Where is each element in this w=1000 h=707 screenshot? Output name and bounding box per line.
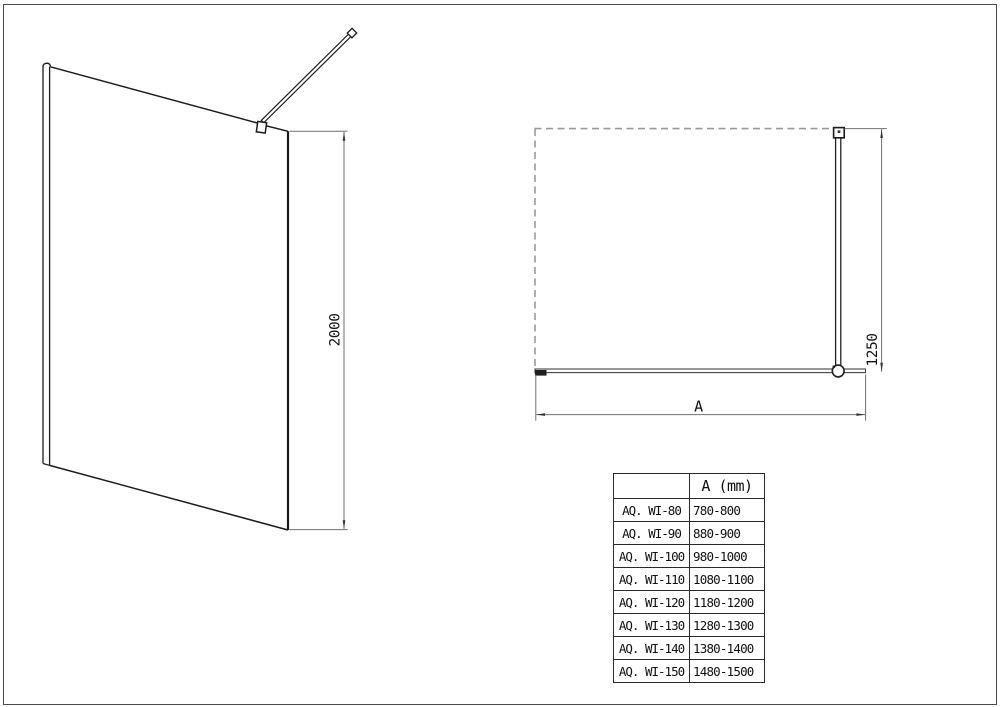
height-dimension-label: 2000 [328, 314, 344, 347]
model-cell: AQ. WI-80 [614, 499, 690, 522]
height-arrow-up [343, 132, 346, 141]
model-cell: AQ. WI-100 [614, 545, 690, 568]
plan-view-drawing: 1250 A [500, 100, 920, 440]
table-row: AQ. WI-80 780-800 [614, 499, 765, 522]
perspective-view-drawing: 2000 [0, 0, 400, 560]
a-range-cell: 880-900 [690, 522, 765, 545]
table-row: AQ. WI-150 1480-1500 [614, 660, 765, 683]
glass-top-edge-right [266, 126, 288, 132]
glass-bracket [256, 121, 266, 133]
support-bar [260, 28, 357, 124]
table-row: AQ. WI-130 1280-1300 [614, 614, 765, 637]
glass-bottom-edge [50, 465, 288, 530]
table-row: AQ. WI-90 880-900 [614, 522, 765, 545]
a-range-cell: 1180-1200 [690, 591, 765, 614]
wall-profile [43, 63, 50, 465]
a-range-cell: 1080-1100 [690, 568, 765, 591]
glass-panel-plan [535, 369, 866, 373]
size-table-header-model [614, 474, 690, 499]
glass-panel [50, 67, 288, 530]
depth-dimension-label: 1250 [865, 334, 881, 367]
table-row: AQ. WI-120 1180-1200 [614, 591, 765, 614]
a-range-cell: 980-1000 [690, 545, 765, 568]
wall-bracket-screw [838, 130, 841, 133]
model-cell: AQ. WI-130 [614, 614, 690, 637]
size-table: A (mm) AQ. WI-80 780-800 AQ. WI-90 880-9… [613, 473, 765, 683]
wall-profile-bottom-cap [43, 464, 50, 466]
model-cell: AQ. WI-90 [614, 522, 690, 545]
a-range-cell: 1280-1300 [690, 614, 765, 637]
width-dimension-label: A [694, 398, 703, 416]
glass-top-edge-left [50, 67, 257, 123]
glass-connector-detail [833, 365, 836, 368]
wall-profile-top-cap [43, 63, 50, 66]
wall-profile-plan [535, 370, 547, 376]
table-row: AQ. WI-110 1080-1100 [614, 568, 765, 591]
a-range-cell: 780-800 [690, 499, 765, 522]
size-table-header-row: A (mm) [614, 474, 765, 499]
support-bar-plan [836, 138, 841, 367]
a-range-cell: 1480-1500 [690, 660, 765, 683]
a-range-cell: 1380-1400 [690, 637, 765, 660]
width-arrow-left [536, 413, 545, 416]
width-arrow-right [856, 413, 865, 416]
shower-area-dashed-outline [535, 129, 834, 370]
model-cell: AQ. WI-140 [614, 637, 690, 660]
size-table-header-a: A (mm) [690, 474, 765, 499]
support-bar-tube [261, 33, 352, 123]
model-cell: AQ. WI-150 [614, 660, 690, 683]
model-cell: AQ. WI-120 [614, 591, 690, 614]
depth-arrow-up [880, 129, 883, 138]
table-row: AQ. WI-100 980-1000 [614, 545, 765, 568]
height-arrow-down [343, 520, 346, 529]
model-cell: AQ. WI-110 [614, 568, 690, 591]
table-row: AQ. WI-140 1380-1400 [614, 637, 765, 660]
